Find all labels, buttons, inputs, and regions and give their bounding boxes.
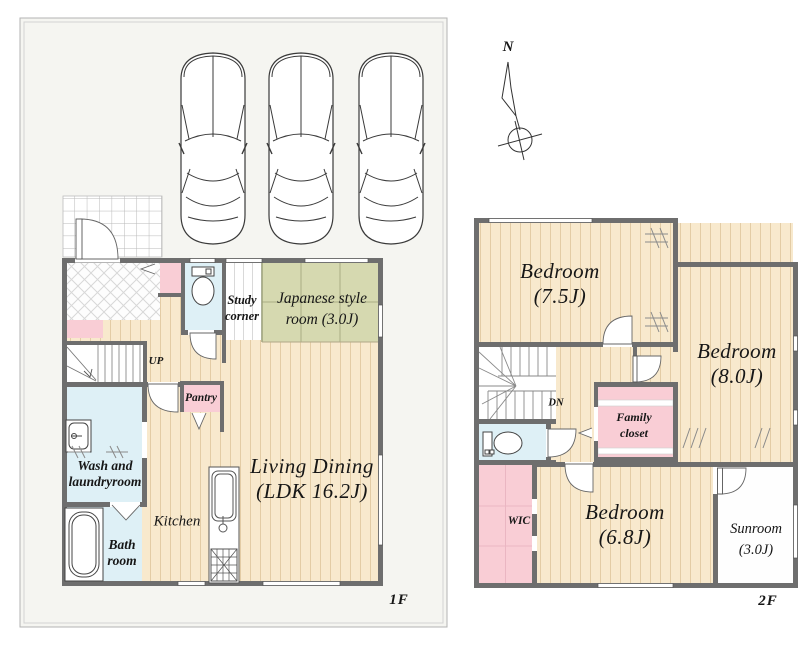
label-line: Sunroom xyxy=(730,519,782,540)
floor-plan-page: N Study corner Japanese style room (3.0J… xyxy=(0,0,806,653)
label-line: (3.0J) xyxy=(730,540,782,561)
label-line: Living Dining xyxy=(250,454,374,479)
room-label-japanese: Japanese style room (3.0J) xyxy=(277,288,367,330)
label-line: room xyxy=(107,553,136,569)
stairs-down-label: DN xyxy=(548,397,563,408)
washer-icon xyxy=(66,420,91,452)
label-line: room (3.0J) xyxy=(277,309,367,330)
label-line: (7.5J) xyxy=(520,284,600,309)
room-label-bathroom: Bath room xyxy=(107,537,136,569)
toilet-icon xyxy=(483,432,522,456)
label-line: Bath xyxy=(107,537,136,553)
room-label-bedroom-75: Bedroom (7.5J) xyxy=(520,259,600,309)
bathtub-icon xyxy=(65,508,103,581)
label-line: Bedroom xyxy=(585,500,665,525)
label-line: laundryroom xyxy=(69,474,142,490)
floor-label-1f: 1F xyxy=(389,592,409,608)
faucet-icon xyxy=(219,524,227,532)
label-line: corner xyxy=(225,308,259,324)
room-label-wic: WIC xyxy=(508,515,530,527)
label-line: Wash and xyxy=(69,458,142,474)
kitchen-counter-icon xyxy=(209,467,239,583)
stairs-up-label: UP xyxy=(149,356,164,368)
car-icon xyxy=(179,53,247,244)
toilet-icon xyxy=(192,267,214,305)
room-label-bedroom-80: Bedroom (8.0J) xyxy=(697,339,777,389)
compass-north-label: N xyxy=(503,39,514,55)
entrance-cabinet xyxy=(67,320,103,338)
room-label-bedroom-68: Bedroom (6.8J) xyxy=(585,500,665,550)
stove-icon xyxy=(211,549,237,581)
floor-label-2f: 2F xyxy=(758,593,778,609)
label-line: Study xyxy=(225,292,259,308)
room-label-family-closet: Family closet xyxy=(616,409,651,441)
compass-icon xyxy=(498,62,542,160)
room-label-living-dining: Living Dining (LDK 16.2J) xyxy=(250,454,374,504)
label-line: (6.8J) xyxy=(585,525,665,550)
car-icon xyxy=(267,53,335,244)
label-line: Japanese style xyxy=(277,288,367,309)
label-line: (LDK 16.2J) xyxy=(250,479,374,504)
label-line: Bedroom xyxy=(520,259,600,284)
label-line: Bedroom xyxy=(697,339,777,364)
label-line: (8.0J) xyxy=(697,364,777,389)
stairs-2f xyxy=(479,347,556,419)
label-line: Family xyxy=(616,409,651,425)
room-label-washroom: Wash and laundryroom xyxy=(69,458,142,490)
room-label-sunroom: Sunroom (3.0J) xyxy=(730,519,782,561)
car-icon xyxy=(357,53,425,244)
entrance-tile xyxy=(67,263,160,320)
shoe-cabinet xyxy=(160,263,181,297)
label-line: closet xyxy=(616,425,651,441)
room-label-study-corner: Study corner xyxy=(225,292,259,324)
room-label-pantry: Pantry xyxy=(185,392,217,404)
room-label-kitchen: Kitchen xyxy=(154,512,201,533)
